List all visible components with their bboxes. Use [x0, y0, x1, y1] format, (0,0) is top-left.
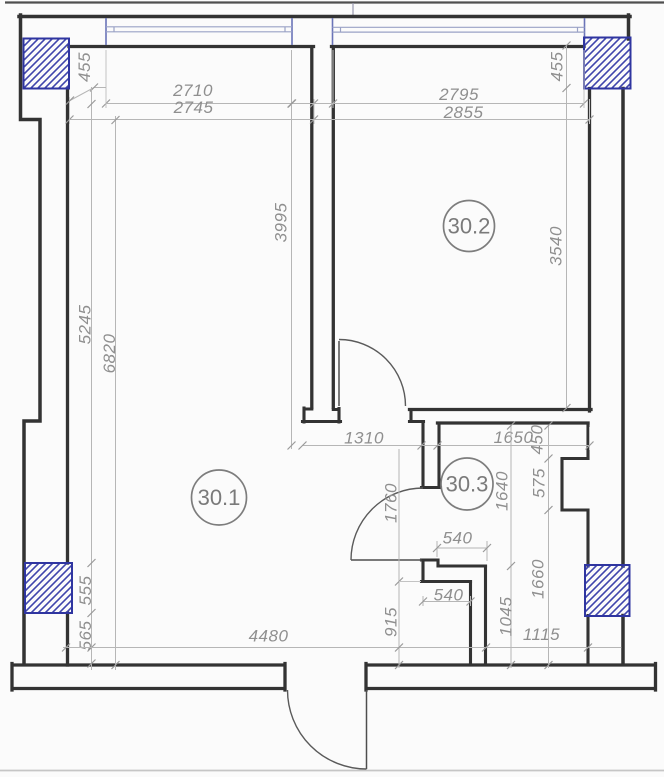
svg-text:5245: 5245 [76, 305, 95, 345]
svg-text:575: 575 [530, 468, 549, 498]
svg-text:915: 915 [382, 607, 401, 637]
svg-text:3540: 3540 [547, 226, 566, 266]
svg-text:30.3: 30.3 [446, 472, 489, 497]
svg-text:1640: 1640 [493, 471, 512, 511]
svg-text:540: 540 [434, 586, 464, 605]
svg-text:1115: 1115 [523, 625, 560, 644]
svg-text:1310: 1310 [344, 429, 384, 448]
svg-text:540: 540 [443, 529, 473, 548]
svg-text:30.2: 30.2 [448, 214, 491, 239]
svg-text:2795: 2795 [438, 85, 479, 104]
svg-text:1760: 1760 [382, 483, 401, 523]
svg-text:1045: 1045 [497, 597, 516, 637]
svg-text:3995: 3995 [272, 203, 291, 243]
svg-text:455: 455 [548, 52, 567, 82]
svg-text:2855: 2855 [443, 103, 484, 122]
svg-text:2745: 2745 [173, 98, 214, 117]
svg-text:4480: 4480 [249, 627, 289, 646]
svg-text:30.1: 30.1 [198, 485, 241, 510]
svg-text:1660: 1660 [529, 559, 548, 599]
svg-text:565: 565 [76, 621, 95, 651]
svg-text:6820: 6820 [100, 334, 119, 374]
svg-text:555: 555 [76, 576, 95, 606]
svg-text:450: 450 [528, 425, 547, 455]
svg-text:455: 455 [75, 52, 94, 82]
